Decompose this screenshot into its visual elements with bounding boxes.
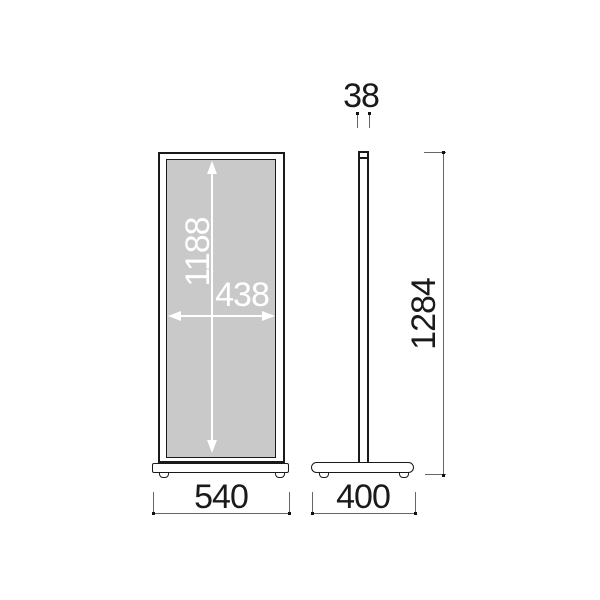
dim-endpoint-dot xyxy=(368,112,371,115)
arrowhead-down-icon xyxy=(207,440,217,453)
extension-line xyxy=(312,492,313,513)
extension-line xyxy=(415,492,416,513)
dimension-side-base-depth: 400 xyxy=(0,0,600,600)
side-pole-cap-line xyxy=(360,157,367,159)
panel-width-arrow-shaft xyxy=(174,315,269,317)
panel-height-arrow-shaft xyxy=(211,167,213,444)
side-base xyxy=(311,462,414,473)
arrowhead-up-icon xyxy=(207,161,217,174)
arrowhead-left-icon xyxy=(168,311,181,321)
arrowhead-right-icon xyxy=(262,311,275,321)
front-base xyxy=(152,463,289,473)
dim-endpoint-dot xyxy=(288,512,291,515)
dim-endpoint-dot xyxy=(442,151,445,154)
dim-endpoint-dot xyxy=(152,512,155,515)
dim-endpoint-dot xyxy=(414,512,417,515)
dim-endpoint-dot xyxy=(311,512,314,515)
dim-endpoint-dot xyxy=(442,474,445,477)
dim-label-side-base-depth: 400 xyxy=(336,480,390,514)
dim-endpoint-dot xyxy=(356,112,359,115)
dimension-drawing-canvas: 1188 438 38 1284 540 xyxy=(0,0,600,600)
